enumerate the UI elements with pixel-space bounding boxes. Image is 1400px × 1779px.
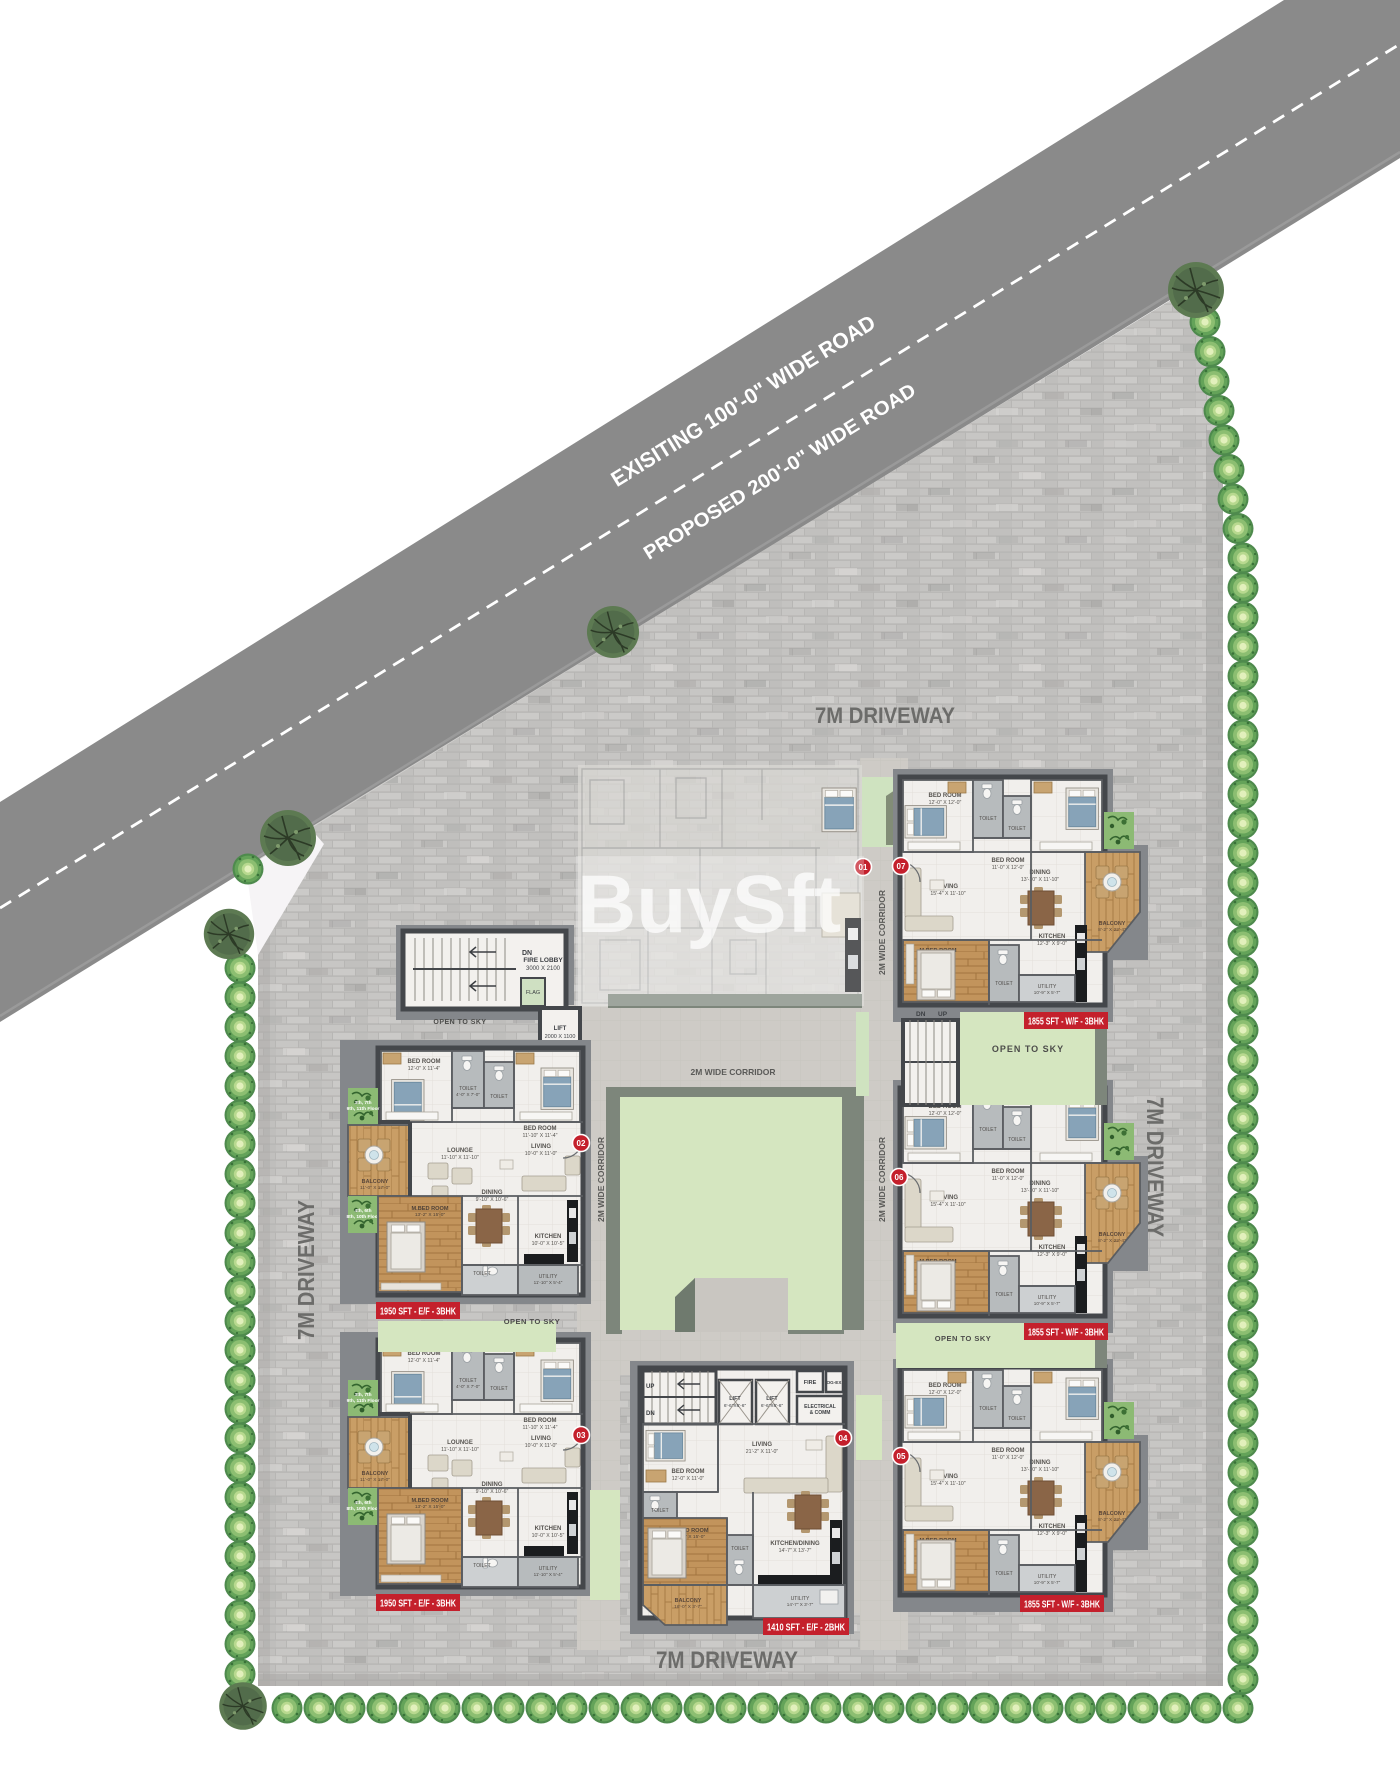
svg-text:3th, 7th: 3th, 7th [354, 1100, 371, 1106]
svg-text:14'-7" X 3'-7": 14'-7" X 3'-7" [787, 1602, 814, 1607]
svg-text:LIFT: LIFT [729, 1396, 741, 1402]
svg-text:M.BED ROOM: M.BED ROOM [412, 1206, 449, 1212]
svg-text:UP: UP [938, 1011, 948, 1018]
svg-text:1855 SFT - W/F - 3BHK: 1855 SFT - W/F - 3BHK [1024, 1600, 1101, 1611]
svg-text:TOILET: TOILET [1008, 826, 1025, 832]
svg-text:2000 X 1100: 2000 X 1100 [545, 1034, 576, 1040]
svg-text:11'-10" X 11'-10": 11'-10" X 11'-10" [441, 1155, 479, 1161]
svg-text:FIRE: FIRE [804, 1380, 817, 1386]
svg-text:1855 SFT - W/F - 3BHK: 1855 SFT - W/F - 3BHK [1028, 1328, 1105, 1339]
svg-text:DN: DN [916, 1011, 926, 1018]
svg-text:10'-9" X 5'-7": 10'-9" X 5'-7" [1034, 990, 1061, 995]
svg-text:14'-7" X 13'-7": 14'-7" X 13'-7" [779, 1548, 812, 1554]
svg-text:10'-0" X 10'-5": 10'-0" X 10'-5" [532, 1241, 565, 1247]
svg-text:BALCONY: BALCONY [362, 1179, 389, 1185]
svg-text:03: 03 [577, 1431, 586, 1440]
svg-text:BED ROOM: BED ROOM [672, 1469, 705, 1475]
svg-text:BALCONY: BALCONY [675, 1598, 702, 1604]
svg-text:1410 SFT - E/F - 2BHK: 1410 SFT - E/F - 2BHK [767, 1623, 846, 1634]
svg-text:OPEN TO SKY: OPEN TO SKY [433, 1019, 486, 1026]
svg-text:BED ROOM: BED ROOM [992, 858, 1025, 864]
svg-text:05: 05 [897, 1452, 906, 1461]
svg-text:3000 X 2100: 3000 X 2100 [526, 966, 561, 972]
svg-text:13'-2" X 15'-0": 13'-2" X 15'-0" [415, 1212, 446, 1218]
svg-text:LIFT: LIFT [766, 1396, 778, 1402]
svg-text:13'-10" X 11'-10": 13'-10" X 11'-10" [1021, 877, 1059, 883]
svg-text:2M WIDE CORRIDOR: 2M WIDE CORRIDOR [691, 1067, 776, 1077]
svg-text:1950 SFT - E/F - 3BHK: 1950 SFT - E/F - 3BHK [380, 1599, 457, 1610]
svg-text:12'-0" X 12'-0": 12'-0" X 12'-0" [929, 800, 962, 806]
svg-text:12'-0" X 11'-0": 12'-0" X 11'-0" [672, 1476, 705, 1482]
svg-text:FIRE LOBBY: FIRE LOBBY [523, 957, 563, 964]
svg-text:2M WIDE CORRIDOR: 2M WIDE CORRIDOR [877, 890, 887, 975]
svg-text:1855 SFT - W/F - 3BHK: 1855 SFT - W/F - 3BHK [1028, 1017, 1105, 1028]
svg-text:7M DRIVEWAY: 7M DRIVEWAY [815, 703, 955, 728]
svg-text:LOUNGE: LOUNGE [447, 1148, 473, 1154]
svg-text:1950 SFT - E/F - 3BHK: 1950 SFT - E/F - 3BHK [380, 1307, 457, 1318]
svg-text:TOILET: TOILET [473, 1271, 490, 1277]
svg-text:2M WIDE CORRIDOR: 2M WIDE CORRIDOR [596, 1137, 606, 1222]
svg-text:OPEN TO SKY: OPEN TO SKY [992, 1044, 1064, 1054]
svg-text:7M DRIVEWAY: 7M DRIVEWAY [656, 1647, 798, 1674]
svg-text:BED ROOM: BED ROOM [929, 793, 962, 799]
svg-text:LIVING: LIVING [752, 1442, 772, 1448]
svg-text:06: 06 [895, 1173, 904, 1182]
svg-text:9th, 11th Floor: 9th, 11th Floor [347, 1106, 380, 1112]
svg-text:11'-10" X 11'-4": 11'-10" X 11'-4" [523, 1133, 558, 1139]
svg-text:& COMM: & COMM [810, 1410, 831, 1416]
svg-text:11'-0" X 12'-0": 11'-0" X 12'-0" [992, 865, 1025, 871]
svg-text:02: 02 [577, 1139, 586, 1148]
svg-text:12'-0" X 11'-4": 12'-0" X 11'-4" [408, 1066, 441, 1072]
svg-text:TOILET: TOILET [651, 1508, 668, 1514]
svg-text:BuySft: BuySft [577, 859, 841, 950]
svg-text:9'-10" X 10'-6": 9'-10" X 10'-6" [476, 1197, 509, 1203]
svg-text:7M DRIVEWAY: 7M DRIVEWAY [293, 1200, 319, 1340]
svg-text:DN: DN [522, 950, 532, 957]
svg-text:DINING: DINING [1030, 870, 1051, 876]
svg-text:11'-10" X 5'-4": 11'-10" X 5'-4" [534, 1280, 563, 1285]
svg-text:FLAG: FLAG [526, 990, 540, 996]
svg-text:BED ROOM: BED ROOM [524, 1126, 557, 1132]
svg-text:11'-0" X 17'-0": 11'-0" X 17'-0" [360, 1185, 390, 1191]
svg-text:OPEN TO SKY: OPEN TO SKY [935, 1334, 992, 1343]
svg-text:10'-0" X 11'-0": 10'-0" X 11'-0" [525, 1151, 558, 1157]
svg-text:BALCONY: BALCONY [1099, 921, 1126, 927]
svg-text:TOILET: TOILET [731, 1546, 748, 1552]
svg-text:LIVING: LIVING [531, 1144, 551, 1150]
svg-text:OPEN TO SKY: OPEN TO SKY [504, 1317, 561, 1326]
svg-text:KITCHEN: KITCHEN [535, 1234, 562, 1240]
svg-text:6'-6"X6'-6": 6'-6"X6'-6" [724, 1403, 747, 1409]
svg-text:15'-4" X 11'-10": 15'-4" X 11'-10" [930, 891, 965, 897]
svg-text:6'-6"X6'-6": 6'-6"X6'-6" [761, 1403, 784, 1409]
svg-text:TOILET: TOILET [490, 1094, 507, 1100]
svg-text:16'-0" X 3'-7": 16'-0" X 3'-7" [674, 1604, 702, 1610]
svg-text:07: 07 [897, 862, 906, 871]
svg-text:4'-0" X 7'-0": 4'-0" X 7'-0" [456, 1092, 480, 1097]
svg-text:DN: DN [646, 1411, 655, 1417]
svg-text:TOILET: TOILET [995, 981, 1012, 987]
svg-text:KITCHEN/DINING: KITCHEN/DINING [770, 1541, 820, 1547]
svg-text:LIFT: LIFT [554, 1026, 567, 1032]
svg-text:8'-2" X 22'-4": 8'-2" X 22'-4" [1098, 927, 1126, 933]
svg-text:12'-3" X 9'-0": 12'-3" X 9'-0" [1037, 941, 1067, 947]
svg-text:4th, 6th: 4th, 6th [354, 1208, 371, 1214]
svg-text:21'-2" X 11'-0": 21'-2" X 11'-0" [746, 1449, 779, 1455]
svg-text:TOILET: TOILET [979, 816, 996, 822]
svg-text:2M WIDE CORRIDOR: 2M WIDE CORRIDOR [877, 1137, 887, 1222]
svg-text:UP: UP [646, 1384, 654, 1390]
svg-text:8th, 10th Floor: 8th, 10th Floor [346, 1214, 379, 1220]
svg-text:OG-EX: OG-EX [827, 1380, 843, 1385]
svg-text:BED ROOM: BED ROOM [408, 1059, 441, 1065]
svg-text:04: 04 [839, 1434, 848, 1443]
